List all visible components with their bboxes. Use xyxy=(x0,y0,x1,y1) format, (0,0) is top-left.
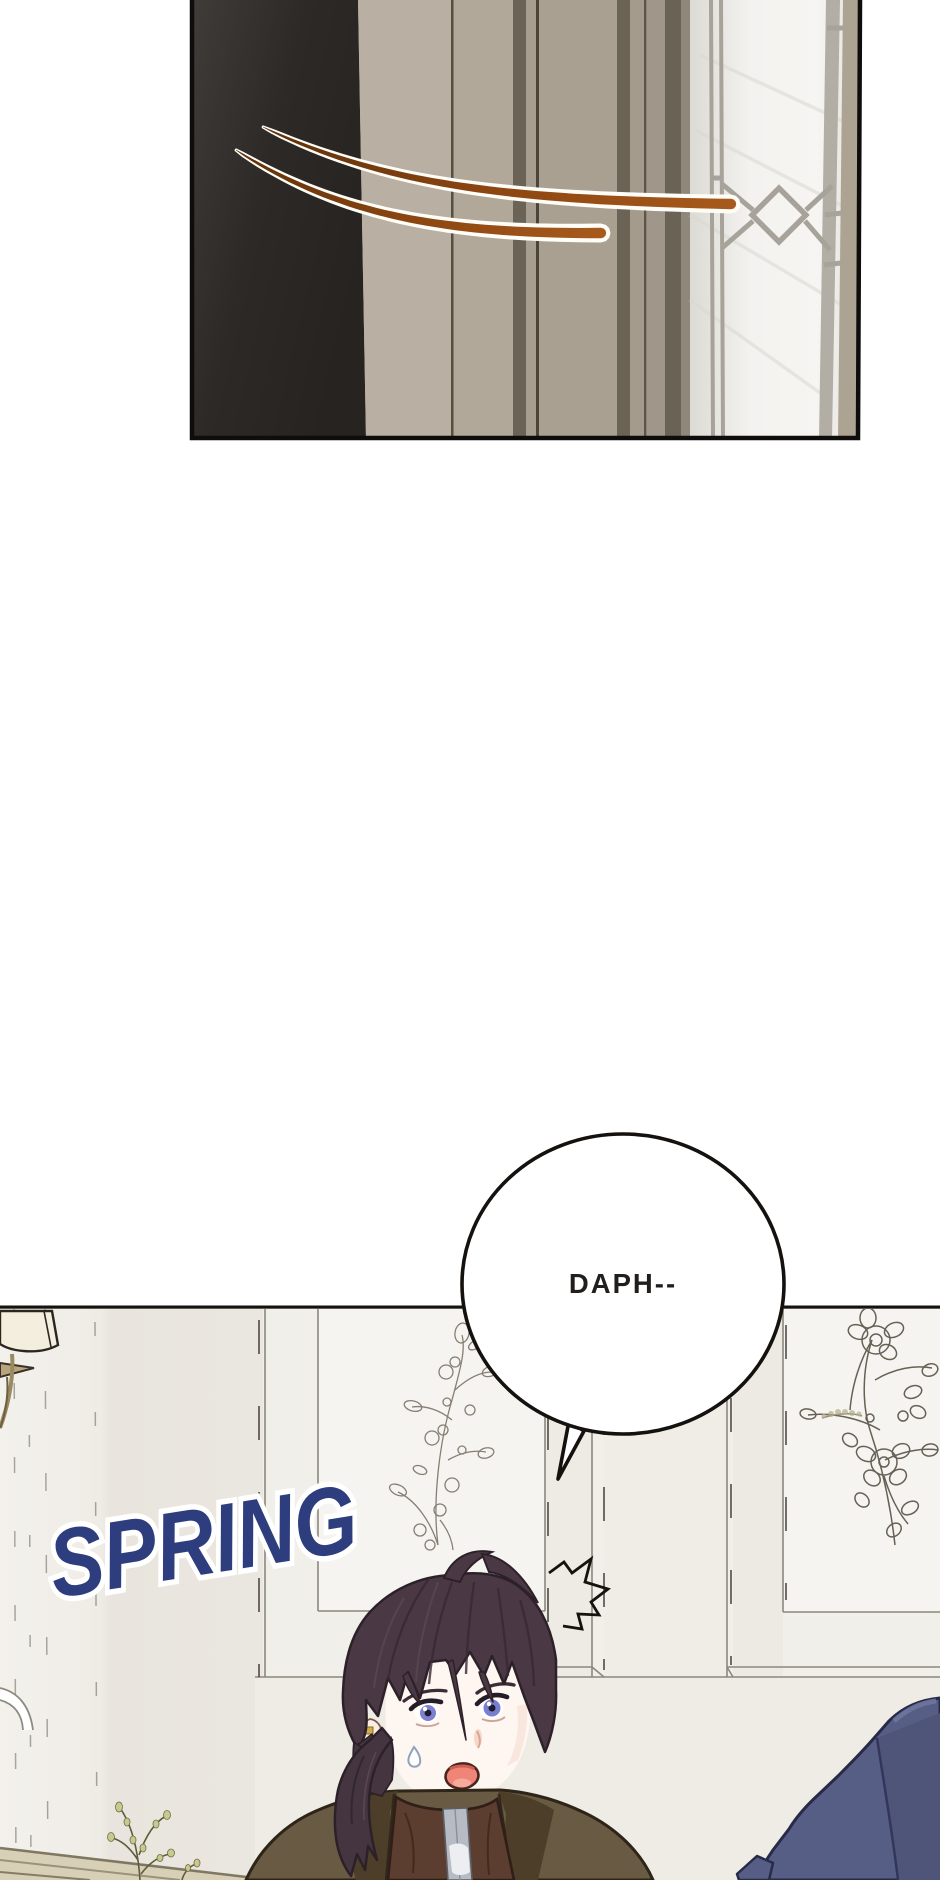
svg-text:DAPH--: DAPH-- xyxy=(569,1268,677,1299)
